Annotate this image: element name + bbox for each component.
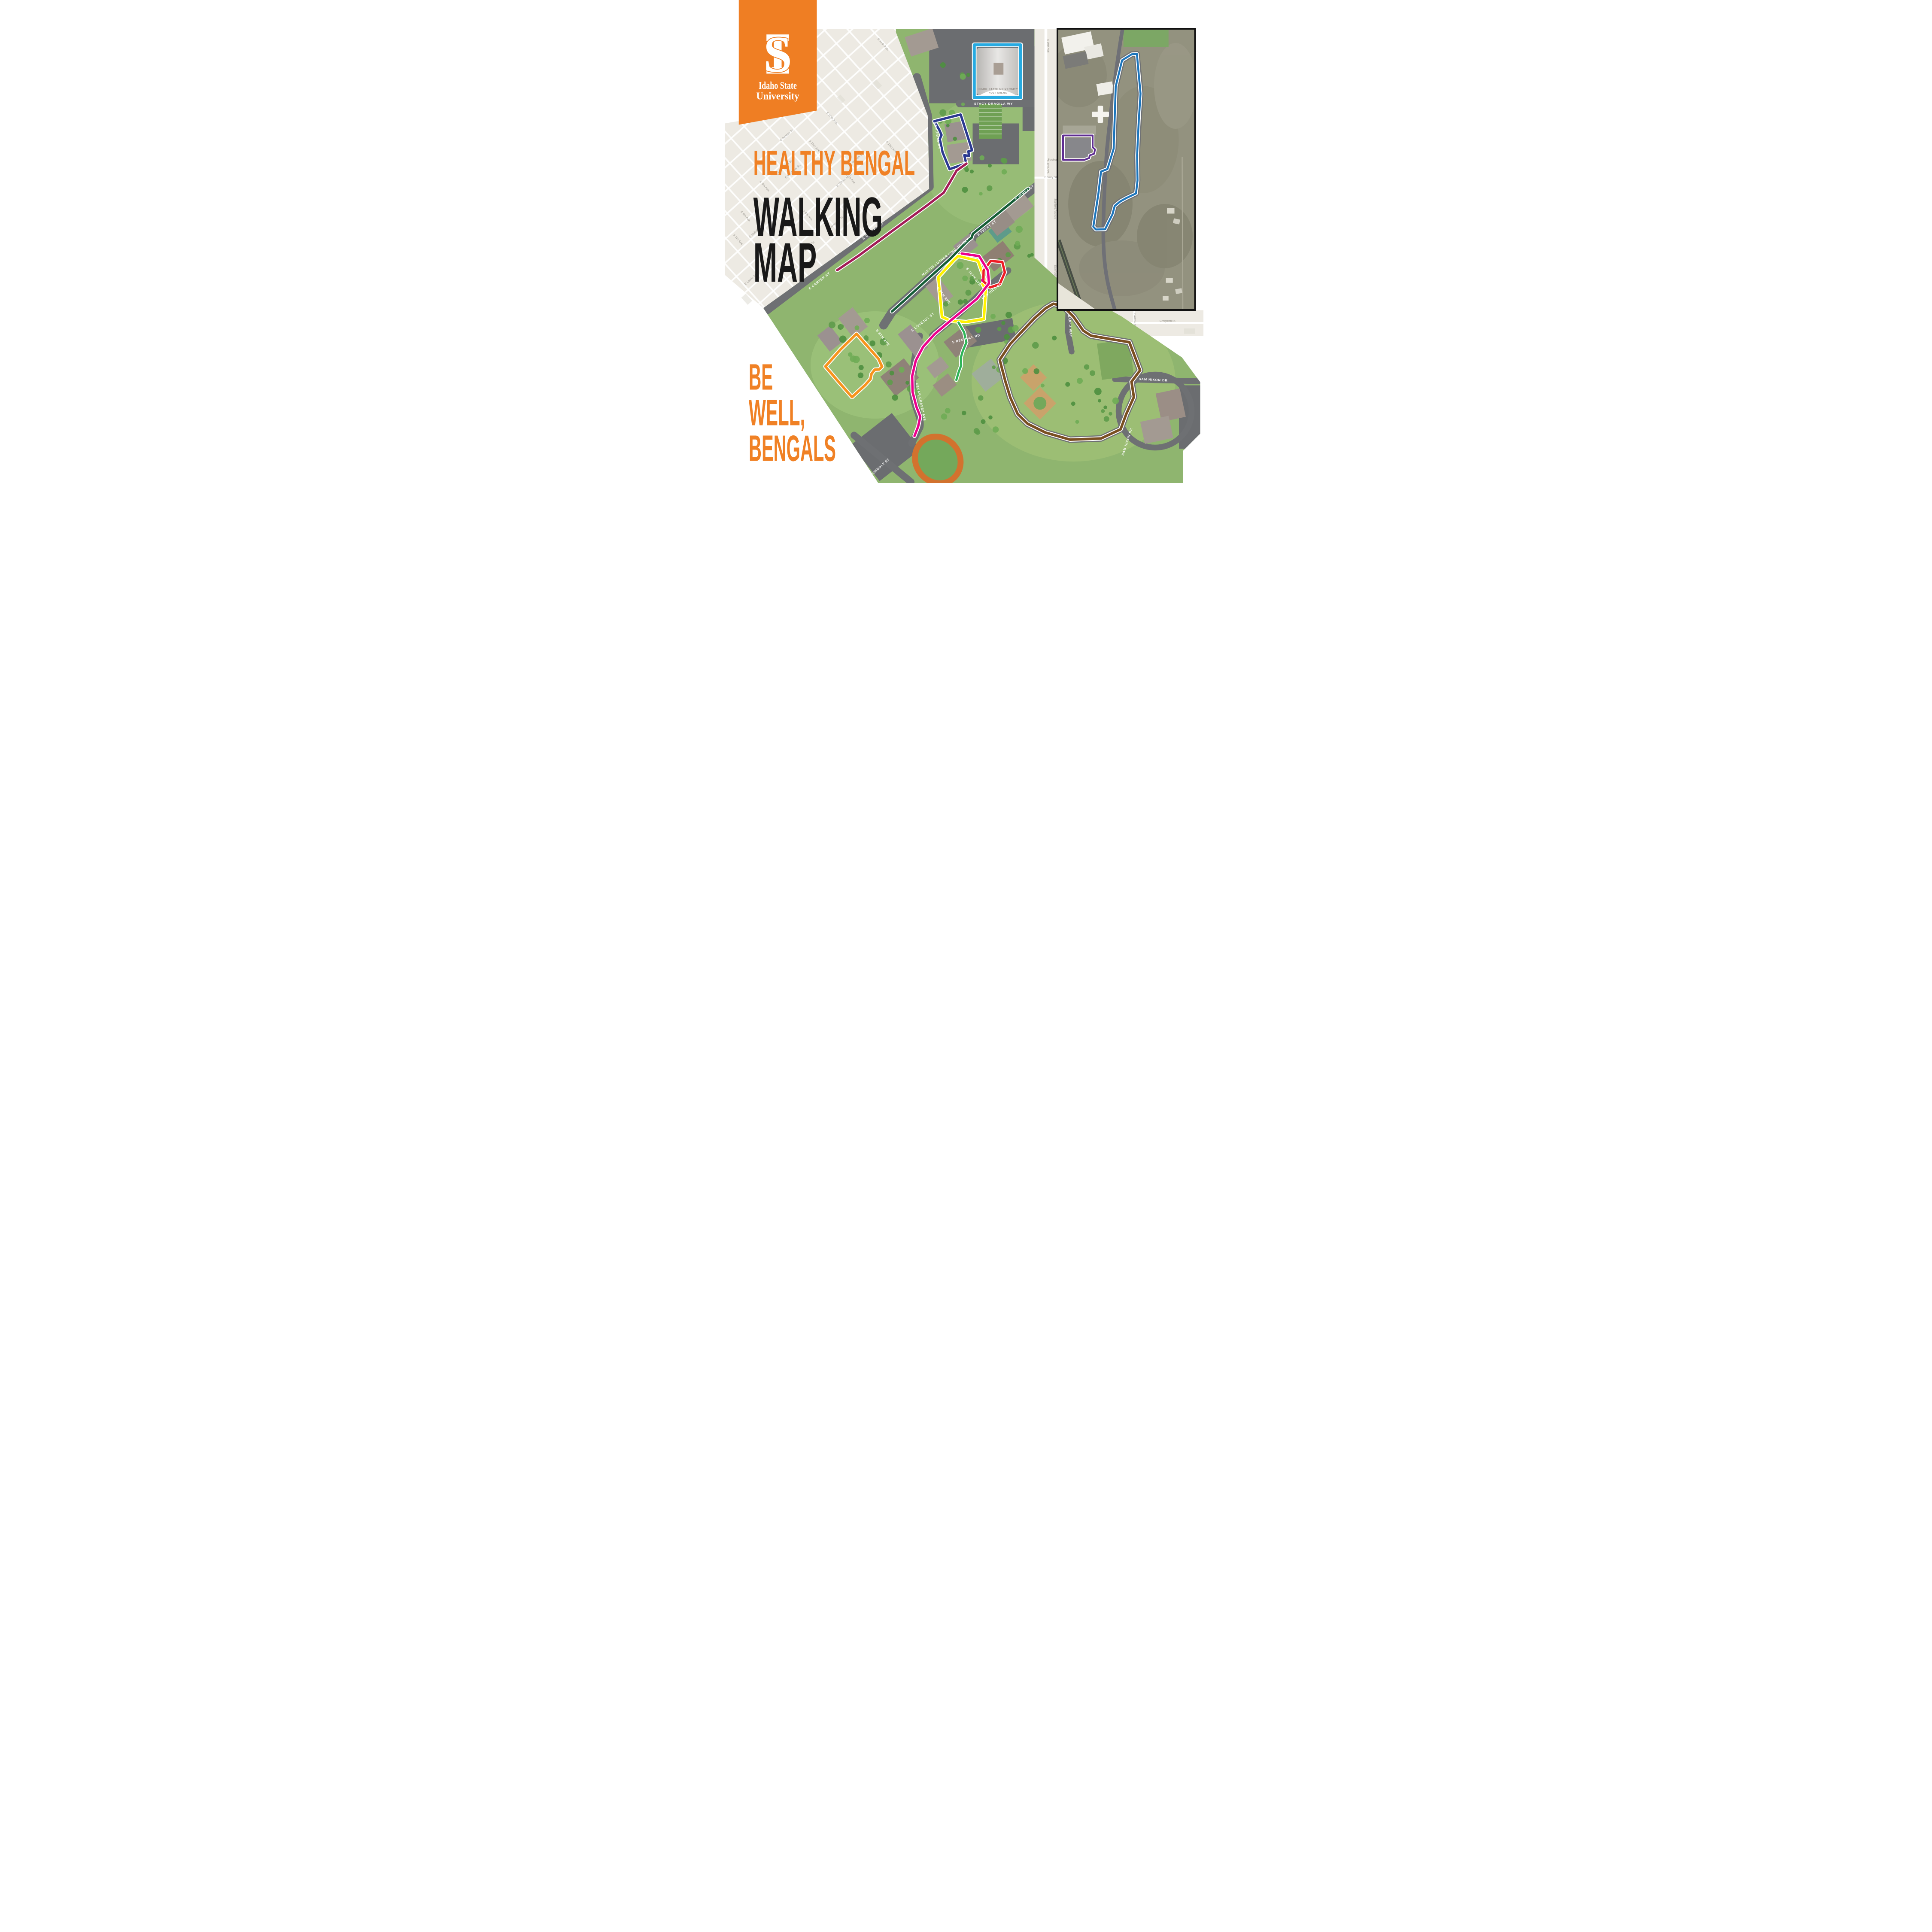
tree: [857, 373, 863, 379]
tree: [892, 395, 898, 401]
tree: [981, 419, 985, 424]
monogram-s: S: [763, 26, 792, 83]
tree: [1001, 321, 1005, 325]
street-label: E Terry St.: [1044, 176, 1057, 179]
tree: [885, 361, 891, 368]
tree: [869, 340, 875, 346]
title-line2: MAP: [753, 231, 817, 294]
tree: [905, 381, 909, 385]
tree: [1033, 368, 1039, 374]
tree: [997, 327, 1001, 331]
street-label: S 19th Ave.: [1046, 160, 1049, 174]
title-kicker: HEALTHY BENGAL: [753, 143, 914, 183]
tree: [1077, 378, 1083, 384]
street-label: S 19th Ave.: [1046, 39, 1049, 53]
isu-banner: S Idaho State University: [738, 0, 817, 125]
tree: [979, 155, 984, 161]
tree: [979, 192, 983, 196]
footer-line3: BENGALS: [749, 428, 836, 469]
tree: [1071, 401, 1075, 406]
tree: [978, 395, 984, 401]
tree: [992, 426, 999, 433]
tree: [988, 164, 992, 167]
tree: [992, 365, 996, 369]
tree: [970, 170, 974, 173]
tree: [941, 413, 947, 420]
tree: [1103, 416, 1109, 422]
tree: [852, 356, 860, 363]
tree: [962, 411, 966, 416]
tree: [1032, 342, 1039, 349]
tree: [1027, 254, 1031, 258]
tree: [953, 137, 957, 141]
tree: [1004, 334, 1010, 340]
tree: [1001, 158, 1007, 164]
satellite-inset: [1051, 29, 1197, 310]
tree: [1090, 371, 1095, 376]
poster-canvas: E Lewis St.E Bonneville St.E Bonneville …: [725, 0, 1208, 483]
inset-green-field: [1123, 30, 1168, 47]
tree: [957, 262, 963, 269]
wordmark-line2: University: [756, 91, 799, 102]
walking-map-poster: E Lewis St.E Bonneville St.E Bonneville …: [725, 0, 1208, 483]
inset-track-road: [1182, 157, 1183, 310]
arena-name: IDAHO STATE UNIVERSITY: [978, 88, 1018, 91]
tree: [864, 318, 870, 323]
tree: [1098, 399, 1101, 403]
tree: [966, 73, 970, 77]
tree: [1065, 382, 1070, 387]
wordmark-line1: Idaho State: [759, 80, 797, 91]
tree: [854, 325, 859, 330]
tree: [940, 62, 945, 68]
street-label: Stanford Avenue: [1054, 198, 1057, 219]
tree: [1109, 412, 1112, 416]
tree: [961, 103, 965, 106]
tree: [963, 299, 968, 304]
tree: [962, 276, 968, 281]
inset-business-park-building: [1064, 138, 1091, 158]
tree: [1094, 388, 1101, 395]
tree: [829, 322, 835, 328]
tree: [889, 371, 894, 376]
isu-monogram-logo: S: [763, 26, 792, 83]
holt-arena: IDAHO STATE UNIVERSITY HOLT ARENA: [977, 48, 1018, 95]
tree: [1041, 384, 1045, 388]
tree: [1075, 420, 1079, 424]
tree: [988, 416, 993, 420]
tree: [1015, 241, 1020, 246]
tree: [957, 299, 963, 305]
tree: [1001, 169, 1007, 175]
tree: [1084, 365, 1089, 370]
tree: [946, 124, 949, 128]
tree: [1101, 409, 1105, 413]
tree: [975, 327, 981, 333]
tree: [1005, 252, 1011, 257]
tree: [1005, 312, 1012, 318]
tree: [973, 428, 979, 434]
tree: [1052, 336, 1057, 340]
tree: [1015, 226, 1023, 233]
arena-subname: HOLT ARENA: [988, 92, 1007, 94]
street-label: Creighton St.: [1160, 320, 1176, 323]
tree: [1022, 368, 1028, 374]
tree: [1012, 325, 1018, 331]
tree: [887, 380, 893, 385]
footer-line2: WELL,: [749, 393, 805, 434]
tree: [858, 365, 863, 370]
tree: [945, 408, 950, 413]
tree: [960, 74, 966, 80]
tree: [839, 324, 844, 329]
tree: [899, 367, 905, 373]
tree: [939, 109, 946, 116]
tree: [987, 185, 993, 191]
tree: [1112, 398, 1119, 404]
footer-line1: BE: [749, 357, 773, 398]
tree: [962, 187, 968, 193]
tree: [1103, 406, 1107, 410]
street-label: STACY DRAGILA WY: [974, 102, 1013, 106]
tree: [990, 314, 996, 319]
tree: [865, 337, 869, 341]
tree: [965, 290, 971, 296]
